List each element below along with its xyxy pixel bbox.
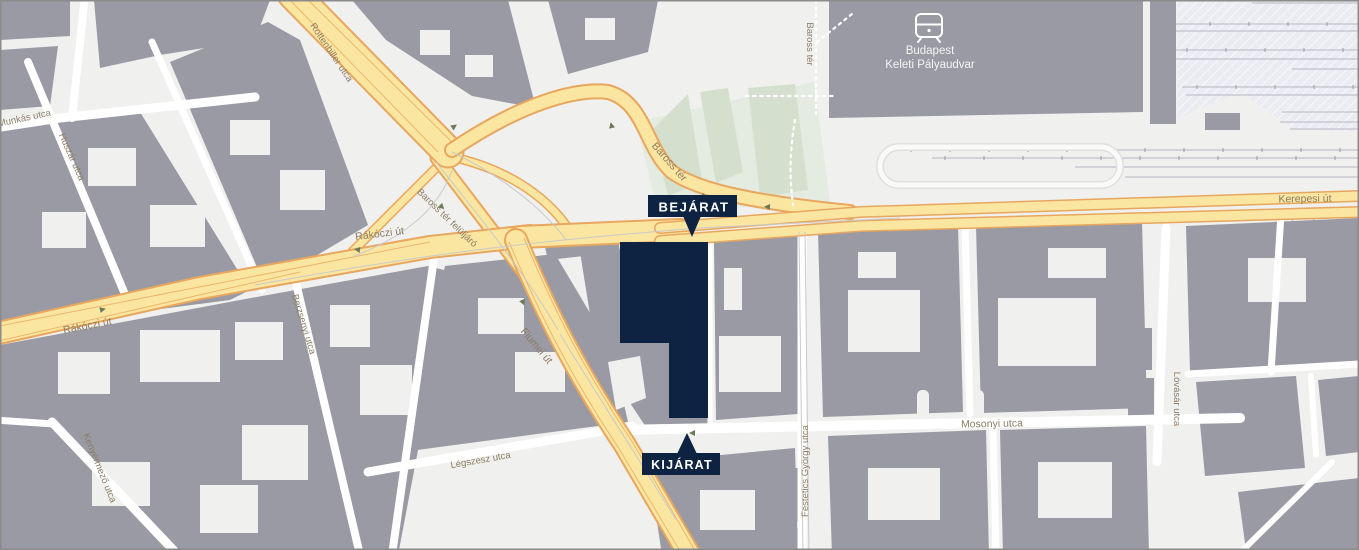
station-name-line2: Keleti Pályaudvar <box>885 59 975 71</box>
exit-marker-label: KIJÁRAT <box>651 457 713 472</box>
street-label-baross-ter: Baross tér <box>804 22 815 65</box>
station-name-line1: Budapest <box>906 45 955 57</box>
map-canvas: Munkás utca Huszár utca Rákóczi út Rákóc… <box>0 0 1359 550</box>
street-label-festetics-gyorgy-utca: Festetics György utca <box>800 424 811 517</box>
entrance-marker-label: BEJÁRAT <box>659 200 730 215</box>
street-label-kerepesi-ut: Kerepesi út <box>1278 193 1331 206</box>
street-label-lovasar-utca: Lóvásár utca <box>1171 372 1182 427</box>
map-screenshot: Munkás utca Huszár utca Rákóczi út Rákóc… <box>0 0 1359 550</box>
street-label-mosonyi-utca: Mosonyi utca <box>961 417 1023 430</box>
